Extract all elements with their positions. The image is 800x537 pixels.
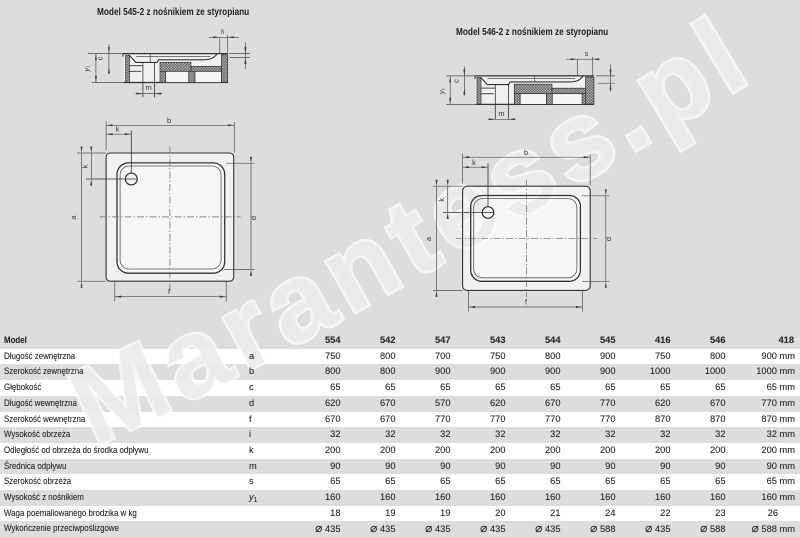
svg-text:f: f: [168, 287, 171, 296]
svg-text:a: a: [424, 236, 433, 241]
svg-text:f: f: [525, 297, 528, 306]
svg-text:c: c: [96, 56, 105, 60]
svg-text:c: c: [451, 79, 460, 83]
svg-text:s: s: [221, 26, 225, 35]
svg-text:m: m: [498, 109, 504, 118]
svg-text:b: b: [167, 116, 171, 125]
svg-text:a: a: [69, 215, 78, 220]
svg-text:k: k: [116, 124, 120, 133]
svg-text:y₁: y₁: [82, 65, 91, 73]
svg-text:k: k: [81, 164, 90, 168]
svg-text:k: k: [472, 158, 476, 167]
svg-text:m: m: [146, 83, 152, 92]
svg-text:d: d: [249, 216, 258, 220]
svg-text:k: k: [437, 198, 446, 202]
svg-text:b: b: [524, 148, 528, 157]
svg-text:y₁: y₁: [437, 87, 446, 95]
svg-text:d: d: [604, 237, 613, 241]
svg-text:s: s: [585, 49, 589, 58]
